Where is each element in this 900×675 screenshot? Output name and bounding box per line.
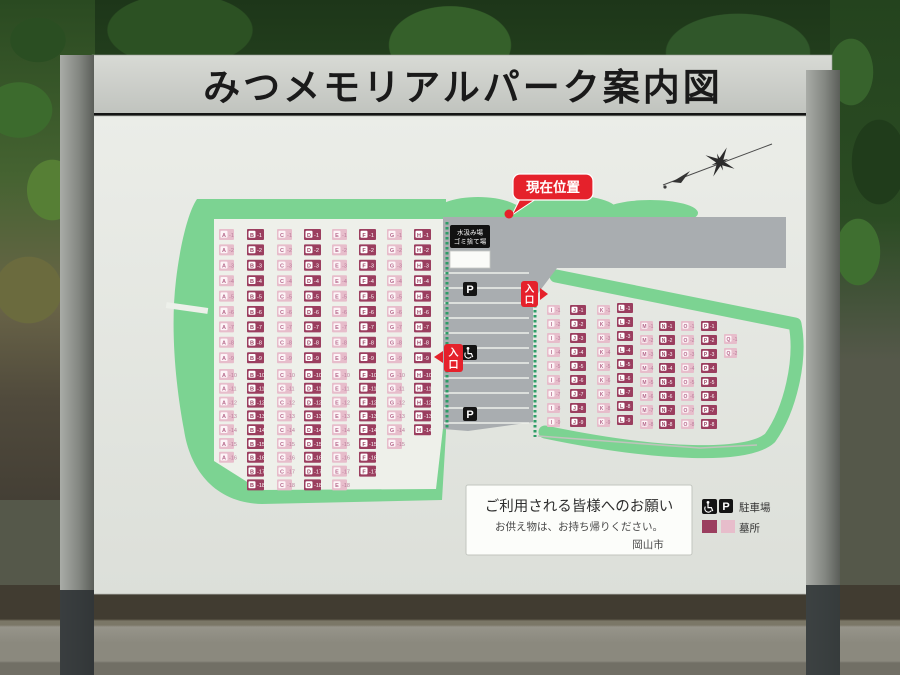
svg-text:D: D <box>307 456 311 462</box>
svg-text:-7: -7 <box>579 392 584 398</box>
svg-text:-12: -12 <box>314 400 322 406</box>
plot-cell: L-1 <box>617 303 633 313</box>
svg-text:L: L <box>620 376 623 382</box>
svg-text:-9: -9 <box>257 356 262 362</box>
svg-text:-8: -8 <box>626 404 631 410</box>
svg-text:-5: -5 <box>287 294 292 300</box>
plot-cell: C-6 <box>277 306 292 317</box>
plot-cell: L-9 <box>617 415 633 425</box>
svg-text:-7: -7 <box>257 325 262 331</box>
svg-text:-2: -2 <box>424 248 429 254</box>
svg-text:C: C <box>280 279 284 285</box>
svg-text:-4: -4 <box>710 366 715 372</box>
svg-text:J: J <box>573 322 576 328</box>
plot-cell: M-1 <box>640 321 654 331</box>
svg-text:-8: -8 <box>424 341 429 347</box>
svg-text:-12: -12 <box>342 400 350 406</box>
svg-text:-5: -5 <box>369 294 374 300</box>
svg-text:B: B <box>250 233 254 239</box>
entrance-label: 口 <box>449 360 459 371</box>
plot-cell: L-8 <box>617 401 633 411</box>
plot-cell: O-3 <box>681 349 695 359</box>
svg-text:-11: -11 <box>342 387 350 393</box>
svg-text:A: A <box>222 400 226 406</box>
plot-cell: H-6 <box>414 306 431 317</box>
svg-text:-13: -13 <box>229 414 237 420</box>
plot-cell: B-1 <box>247 229 264 240</box>
svg-text:-4: -4 <box>287 279 292 285</box>
svg-text:-2: -2 <box>257 248 262 254</box>
svg-text:-3: -3 <box>397 264 402 270</box>
svg-text:A: A <box>222 310 226 316</box>
svg-text:G: G <box>390 233 394 239</box>
svg-text:-6: -6 <box>649 394 654 400</box>
svg-text:G: G <box>390 279 394 285</box>
plot-cell: H-8 <box>414 337 431 348</box>
plot-cell: J-3 <box>570 333 586 343</box>
plot-cell: M-8 <box>640 419 654 429</box>
svg-text:-3: -3 <box>556 336 561 342</box>
plot-cell: K-4 <box>597 347 611 357</box>
svg-text:-8: -8 <box>579 406 584 412</box>
plot-cell: A-7 <box>219 321 234 332</box>
plot-cell: P-4 <box>701 363 717 373</box>
svg-text:-15: -15 <box>369 442 377 448</box>
plot-cell: B-16 <box>247 452 265 463</box>
svg-text:-18: -18 <box>342 483 350 489</box>
svg-text:-8: -8 <box>710 422 715 428</box>
svg-text:-14: -14 <box>397 428 405 434</box>
plot-cell: N-6 <box>659 391 675 401</box>
plot-cell: N-8 <box>659 419 675 429</box>
svg-text:N: N <box>662 338 666 344</box>
svg-text:H: H <box>417 356 421 362</box>
svg-text:A: A <box>222 233 226 239</box>
plot-cell: A-6 <box>219 306 234 317</box>
svg-text:-2: -2 <box>556 322 561 328</box>
svg-text:-11: -11 <box>257 387 265 393</box>
plot-cell: P-1 <box>701 321 717 331</box>
svg-text:-6: -6 <box>342 310 347 316</box>
svg-text:-12: -12 <box>424 400 432 406</box>
plot-cell: E-1 <box>332 229 347 240</box>
svg-text:K: K <box>600 420 604 426</box>
plot-cell: D-9 <box>304 352 321 363</box>
svg-text:-3: -3 <box>287 264 292 270</box>
plot-cell: Q-2 <box>724 348 738 358</box>
plot-cell: J-2 <box>570 319 586 329</box>
svg-text:H: H <box>417 400 421 406</box>
plot-cell: B-2 <box>247 244 264 255</box>
svg-text:-8: -8 <box>257 341 262 347</box>
svg-text:D: D <box>307 294 311 300</box>
svg-text:-10: -10 <box>287 373 295 379</box>
svg-text:-5: -5 <box>314 294 319 300</box>
plot-cell: J-9 <box>570 417 586 427</box>
svg-text:-4: -4 <box>668 366 673 372</box>
plot-cell: G-6 <box>387 306 402 317</box>
svg-text:O: O <box>684 366 688 372</box>
svg-text:-7: -7 <box>690 408 695 414</box>
svg-text:-9: -9 <box>556 420 561 426</box>
top-road <box>443 217 786 268</box>
svg-text:-6: -6 <box>710 394 715 400</box>
plot-cell: L-4 <box>617 345 633 355</box>
plot-cell: K-1 <box>597 305 611 315</box>
svg-text:-9: -9 <box>424 356 429 362</box>
svg-text:E: E <box>335 428 339 434</box>
plot-cell: C-3 <box>277 260 292 271</box>
plot-cell: O-7 <box>681 405 695 415</box>
svg-text:-3: -3 <box>257 264 262 270</box>
svg-text:B: B <box>250 469 254 475</box>
plot-cell: I-6 <box>547 375 561 385</box>
svg-text:-7: -7 <box>424 325 429 331</box>
svg-text:-6: -6 <box>579 378 584 384</box>
svg-text:G: G <box>390 310 394 316</box>
plot-cell: I-5 <box>547 361 561 371</box>
svg-text:-6: -6 <box>314 310 319 316</box>
svg-text:H: H <box>417 341 421 347</box>
svg-text:-15: -15 <box>397 442 405 448</box>
plot-cell: I-3 <box>547 333 561 343</box>
svg-text:-3: -3 <box>342 264 347 270</box>
sign-title: みつメモリアルパーク案内図 <box>203 67 723 108</box>
plot-cell: J-4 <box>570 347 586 357</box>
svg-text:O: O <box>684 408 688 414</box>
legend-dark-plot-swatch <box>702 520 717 533</box>
svg-text:C: C <box>280 356 284 362</box>
svg-text:B: B <box>250 483 254 489</box>
plot-cell: F-11 <box>359 383 377 394</box>
svg-text:D: D <box>307 387 311 393</box>
plot-cell: O-4 <box>681 363 695 373</box>
plot-cell: E-4 <box>332 275 347 286</box>
facility-building <box>450 251 490 268</box>
svg-text:C: C <box>280 294 284 300</box>
svg-text:N: N <box>662 394 666 400</box>
plot-cell: N-7 <box>659 405 675 415</box>
svg-text:-7: -7 <box>649 408 654 414</box>
plot-cell: G-5 <box>387 291 402 302</box>
plot-cell: K-3 <box>597 333 611 343</box>
svg-text:J: J <box>573 364 576 370</box>
plot-cell: G-3 <box>387 260 402 271</box>
svg-text:-2: -2 <box>397 248 402 254</box>
plot-cell: I-7 <box>547 389 561 399</box>
plot-cell: C-8 <box>277 337 292 348</box>
svg-text:-8: -8 <box>287 341 292 347</box>
svg-text:-10: -10 <box>342 373 350 379</box>
svg-text:J: J <box>573 308 576 314</box>
plot-cell: F-15 <box>359 438 377 449</box>
svg-text:C: C <box>280 483 284 489</box>
plot-cell: D-5 <box>304 291 321 302</box>
svg-text:M: M <box>642 380 646 386</box>
svg-text:-15: -15 <box>257 442 265 448</box>
svg-text:-17: -17 <box>369 469 377 475</box>
svg-text:B: B <box>250 414 254 420</box>
svg-text:E: E <box>335 442 339 448</box>
svg-text:-6: -6 <box>397 310 402 316</box>
svg-text:-18: -18 <box>287 483 295 489</box>
svg-text:-5: -5 <box>668 380 673 386</box>
svg-text:K: K <box>600 378 604 384</box>
plot-cell: E-7 <box>332 321 347 332</box>
svg-text:-4: -4 <box>649 366 654 372</box>
svg-text:L: L <box>620 348 623 354</box>
svg-text:-7: -7 <box>710 408 715 414</box>
plot-cell: F-3 <box>359 260 376 271</box>
svg-text:-3: -3 <box>710 352 715 358</box>
plot-cell: P-5 <box>701 377 717 387</box>
svg-text:-6: -6 <box>257 310 262 316</box>
plot-cell: E-6 <box>332 306 347 317</box>
plot-cell: A-8 <box>219 337 234 348</box>
current-location-label: 現在位置 <box>526 179 580 195</box>
svg-text:K: K <box>600 364 604 370</box>
plot-cell: I-4 <box>547 347 561 357</box>
svg-text:-9: -9 <box>342 356 347 362</box>
plot-cell: D-15 <box>304 438 322 449</box>
parking-icon <box>463 282 477 296</box>
svg-text:-9: -9 <box>579 420 584 426</box>
svg-text:A: A <box>222 442 226 448</box>
svg-text:E: E <box>335 356 339 362</box>
svg-text:D: D <box>307 414 311 420</box>
svg-text:M: M <box>642 338 646 344</box>
plot-cell: D-7 <box>304 321 321 332</box>
svg-text:B: B <box>250 294 254 300</box>
svg-text:-1: -1 <box>606 308 611 314</box>
svg-text:A: A <box>222 264 226 270</box>
svg-text:D: D <box>307 442 311 448</box>
plot-cell: D-12 <box>304 397 322 408</box>
svg-text:-6: -6 <box>626 376 631 382</box>
plot-cell: K-5 <box>597 361 611 371</box>
svg-text:-6: -6 <box>606 378 611 384</box>
svg-text:C: C <box>280 456 284 462</box>
plot-cell: B-13 <box>247 410 265 421</box>
svg-text:-3: -3 <box>314 264 319 270</box>
svg-text:-1: -1 <box>397 233 402 239</box>
svg-text:C: C <box>280 414 284 420</box>
plot-cell: G-9 <box>387 352 402 363</box>
plot-cell: A-11 <box>219 383 237 394</box>
legend-plots-label: 墓所 <box>739 522 760 535</box>
svg-text:G: G <box>390 387 394 393</box>
svg-text:-1: -1 <box>626 306 631 312</box>
svg-text:-3: -3 <box>626 334 631 340</box>
svg-text:C: C <box>280 248 284 254</box>
svg-text:-8: -8 <box>649 422 654 428</box>
svg-text:-1: -1 <box>649 324 654 330</box>
svg-text:-16: -16 <box>369 456 377 462</box>
svg-text:M: M <box>642 408 646 414</box>
svg-text:-16: -16 <box>342 456 350 462</box>
svg-text:-8: -8 <box>397 341 402 347</box>
plot-cell: Q-1 <box>724 334 738 344</box>
svg-text:-12: -12 <box>369 400 377 406</box>
svg-text:-17: -17 <box>257 469 265 475</box>
plot-cell: L-7 <box>617 387 633 397</box>
plot-cell: B-17 <box>247 466 265 477</box>
svg-text:-11: -11 <box>397 387 405 393</box>
plot-cell: O-6 <box>681 391 695 401</box>
svg-text:H: H <box>417 310 421 316</box>
plot-cell: I-8 <box>547 403 561 413</box>
svg-text:-4: -4 <box>626 348 631 354</box>
plot-cell: L-6 <box>617 373 633 383</box>
svg-text:-10: -10 <box>369 373 377 379</box>
plot-cell: F-8 <box>359 337 376 348</box>
svg-text:D: D <box>307 248 311 254</box>
svg-text:C: C <box>280 325 284 331</box>
svg-text:-8: -8 <box>314 341 319 347</box>
svg-text:C: C <box>280 341 284 347</box>
plot-cell: E-8 <box>332 337 347 348</box>
svg-text:G: G <box>390 294 394 300</box>
svg-text:-8: -8 <box>556 406 561 412</box>
plot-cell: F-7 <box>359 321 376 332</box>
svg-text:-18: -18 <box>257 483 265 489</box>
svg-text:J: J <box>573 420 576 426</box>
notice-body: お供え物は、お持ち帰りください。 <box>495 520 663 533</box>
svg-text:G: G <box>390 264 394 270</box>
svg-text:D: D <box>307 469 311 475</box>
plot-cell: N-4 <box>659 363 675 373</box>
svg-text:B: B <box>250 356 254 362</box>
plot-cell: N-1 <box>659 321 675 331</box>
svg-text:H: H <box>417 294 421 300</box>
plot-cell: K-7 <box>597 389 611 399</box>
title-divider <box>94 113 831 116</box>
svg-text:-2: -2 <box>287 248 292 254</box>
svg-text:-12: -12 <box>397 400 405 406</box>
svg-text:-2: -2 <box>342 248 347 254</box>
svg-text:-3: -3 <box>668 352 673 358</box>
plot-cell: C-5 <box>277 291 292 302</box>
wheelchair-icon <box>702 499 717 514</box>
svg-text:-13: -13 <box>369 414 377 420</box>
legend-parking-label: 駐車場 <box>739 501 771 514</box>
svg-text:-1: -1 <box>579 308 584 314</box>
svg-text:J: J <box>573 378 576 384</box>
svg-text:-1: -1 <box>710 324 715 330</box>
plot-cell: H-2 <box>414 244 431 255</box>
plot-cell: D-18 <box>304 479 322 490</box>
svg-text:G: G <box>390 442 394 448</box>
notice-signature: 岡山市 <box>632 538 664 551</box>
svg-text:D: D <box>307 400 311 406</box>
plot-cell: M-6 <box>640 391 654 401</box>
plot-cell: I-1 <box>547 305 561 315</box>
plot-cell: H-5 <box>414 291 431 302</box>
svg-text:-3: -3 <box>606 336 611 342</box>
right-post-leg <box>806 585 840 675</box>
svg-text:-7: -7 <box>314 325 319 331</box>
svg-text:A: A <box>222 341 226 347</box>
entrance-label: 口 <box>525 295 535 306</box>
plot-cell: B-12 <box>247 397 265 408</box>
svg-text:-1: -1 <box>257 233 262 239</box>
svg-text:-15: -15 <box>287 442 295 448</box>
svg-text:-9: -9 <box>626 418 631 424</box>
plot-cell: A-9 <box>219 352 234 363</box>
svg-text:M: M <box>642 352 646 358</box>
svg-text:-5: -5 <box>342 294 347 300</box>
parking-icon <box>463 407 477 421</box>
svg-text:J: J <box>573 392 576 398</box>
svg-text:-13: -13 <box>287 414 295 420</box>
plot-cell: K-8 <box>597 403 611 413</box>
plot-cell: H-9 <box>414 352 431 363</box>
svg-text:-11: -11 <box>314 387 322 393</box>
svg-text:E: E <box>335 483 339 489</box>
svg-text:-4: -4 <box>397 279 402 285</box>
svg-text:M: M <box>642 394 646 400</box>
svg-text:-7: -7 <box>229 325 234 331</box>
svg-text:-11: -11 <box>229 387 237 393</box>
svg-text:-11: -11 <box>287 387 295 393</box>
plot-cell: H-10 <box>414 369 432 380</box>
svg-text:-14: -14 <box>257 428 265 434</box>
plot-cell: P-3 <box>701 349 717 359</box>
plot-cell: D-8 <box>304 337 321 348</box>
svg-text:G: G <box>390 356 394 362</box>
plot-cell: M-2 <box>640 335 654 345</box>
svg-text:-6: -6 <box>690 394 695 400</box>
plot-cell: K-6 <box>597 375 611 385</box>
svg-text:B: B <box>250 456 254 462</box>
svg-text:-2: -2 <box>668 338 673 344</box>
svg-text:-1: -1 <box>424 233 429 239</box>
svg-text:E: E <box>335 310 339 316</box>
plot-cell: O-2 <box>681 335 695 345</box>
plot-cell: D-1 <box>304 229 321 240</box>
plot-cell: F-2 <box>359 244 376 255</box>
svg-text:-2: -2 <box>229 248 234 254</box>
plot-cell: E-5 <box>332 291 347 302</box>
svg-text:H: H <box>417 264 421 270</box>
svg-text:E: E <box>335 414 339 420</box>
svg-text:-14: -14 <box>342 428 350 434</box>
svg-text:K: K <box>600 308 604 314</box>
svg-text:-2: -2 <box>314 248 319 254</box>
svg-text:B: B <box>250 387 254 393</box>
svg-text:-1: -1 <box>369 233 374 239</box>
left-post-leg <box>60 590 94 675</box>
plot-cell: E-11 <box>332 383 350 394</box>
plot-cell: G-8 <box>387 337 402 348</box>
plot-cell: C-1 <box>277 229 292 240</box>
svg-text:N: N <box>662 380 666 386</box>
svg-text:-8: -8 <box>668 422 673 428</box>
svg-text:G: G <box>390 400 394 406</box>
svg-text:B: B <box>250 325 254 331</box>
svg-text:-14: -14 <box>287 428 295 434</box>
svg-text:-14: -14 <box>229 428 237 434</box>
svg-text:-11: -11 <box>369 387 377 393</box>
svg-text:-2: -2 <box>626 320 631 326</box>
svg-text:-1: -1 <box>287 233 292 239</box>
svg-text:-3: -3 <box>424 264 429 270</box>
svg-text:K: K <box>600 350 604 356</box>
svg-text:-5: -5 <box>606 364 611 370</box>
svg-text:-1: -1 <box>342 233 347 239</box>
plot-cell: M-4 <box>640 363 654 373</box>
svg-text:-1: -1 <box>668 324 673 330</box>
